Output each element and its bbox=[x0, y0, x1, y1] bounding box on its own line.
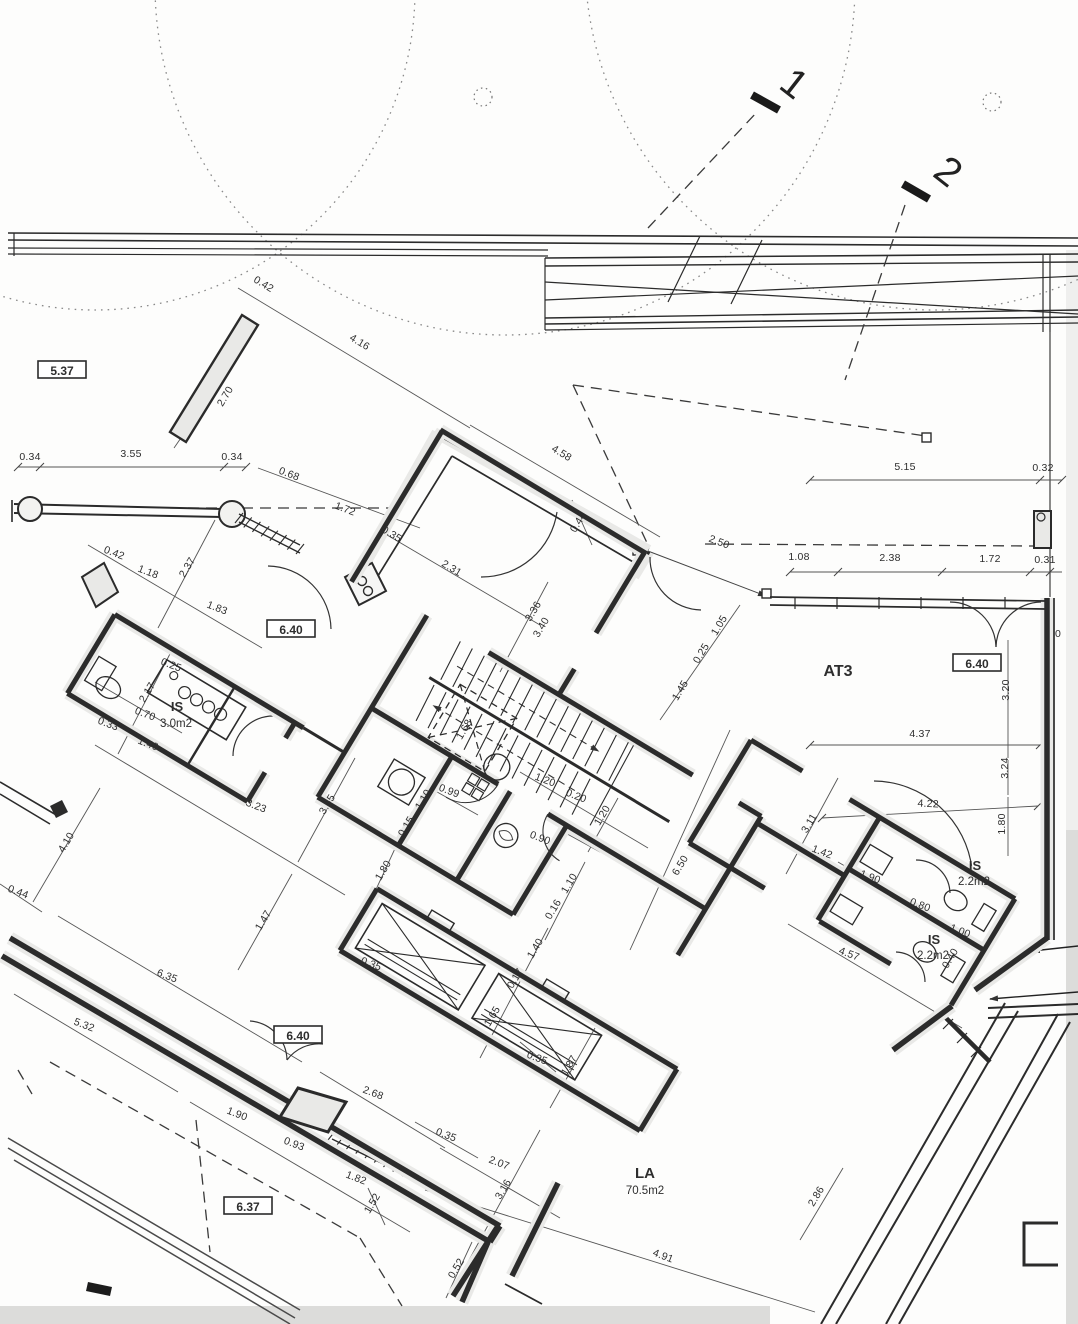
dimension-label: 0.31 bbox=[1034, 554, 1055, 566]
level-label: 5.37 bbox=[50, 364, 74, 378]
dimension-label: 3.55 bbox=[120, 448, 141, 460]
dimension-label: 1.08 bbox=[788, 551, 809, 563]
level-label: 6.37 bbox=[236, 1200, 260, 1214]
dimension-label: 0.34 bbox=[19, 451, 40, 463]
room-area-label: 70.5m2 bbox=[626, 1185, 664, 1197]
room-area-label: 2.2m2 bbox=[917, 950, 949, 962]
floor-plan-svg: 0.424.162.700.343.550.340.681.720.354.58… bbox=[0, 0, 1078, 1324]
dimension-label: 1.80 bbox=[996, 813, 1008, 834]
dimension-label: 0.32 bbox=[1032, 462, 1053, 474]
dimension-label: 2.38 bbox=[879, 552, 900, 564]
room-label: IS bbox=[171, 699, 184, 714]
dimension-label: 5.15 bbox=[894, 461, 915, 473]
dimension-label: 3.24 bbox=[999, 757, 1011, 778]
dimension-label: 4.37 bbox=[909, 728, 930, 740]
dimension-label: 0.34 bbox=[221, 451, 242, 463]
level-label: 6.40 bbox=[965, 657, 989, 671]
level-label: 6.40 bbox=[279, 623, 303, 637]
dimension-label: 3.20 bbox=[1000, 679, 1012, 700]
room-area-label: 3.0m2 bbox=[160, 718, 192, 730]
dimension-label: 4.22 bbox=[917, 797, 939, 810]
stray-text: 0 bbox=[1055, 628, 1061, 640]
room-label: IS bbox=[969, 858, 982, 873]
blueprint-sheet: 0.424.162.700.343.550.340.681.720.354.58… bbox=[0, 0, 1078, 1324]
level-label: 6.40 bbox=[286, 1029, 310, 1043]
room-label: AT3 bbox=[823, 663, 852, 680]
room-label: LA bbox=[635, 1165, 655, 1182]
room-area-label: 2.2m2 bbox=[958, 876, 990, 888]
room-label: IS bbox=[928, 932, 941, 947]
dimension-label: 1.72 bbox=[979, 553, 1000, 565]
